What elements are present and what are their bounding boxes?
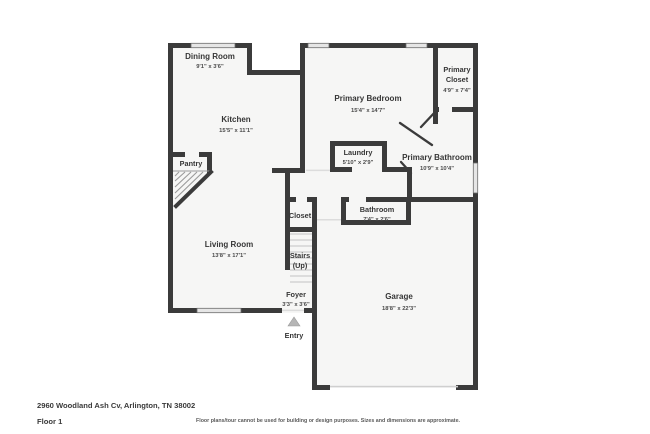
floor-plan-drawing: Dining Room 9'1" x 3'6" Kitchen 15'5" x … <box>0 0 650 434</box>
disclaimer-text: Floor plans/tour cannot be used for buil… <box>196 418 461 424</box>
room-label-primary-bathroom: Primary Bathroom <box>402 153 472 162</box>
window-dining <box>191 43 235 47</box>
room-label-living: Living Room <box>205 240 253 249</box>
hall-threshold <box>306 170 330 172</box>
floor-plan-page: Dining Room 9'1" x 3'6" Kitchen 15'5" x … <box>0 0 650 434</box>
room-dims-primary-bathroom: 10'9" x 10'4" <box>420 166 454 172</box>
room-dims-primary-closet: 4'9" x 7'4" <box>443 88 471 94</box>
room-label-primary-closet-2: Closet <box>446 75 469 84</box>
wall <box>171 152 185 157</box>
room-label-laundry: Laundry <box>344 148 374 157</box>
entry-threshold <box>282 310 304 312</box>
room-label-primary-closet-1: Primary <box>443 65 471 74</box>
floor-label: Floor 1 <box>37 417 63 426</box>
room-dims-living: 13'8" x 17'1" <box>212 253 246 259</box>
room-label-dining: Dining Room <box>185 52 235 61</box>
wall <box>272 168 305 173</box>
room-label-pantry: Pantry <box>180 159 204 168</box>
room-dims-foyer: 3'3" x 3'6" <box>282 302 310 308</box>
wall <box>330 141 387 146</box>
wall <box>366 197 411 202</box>
room-label-kitchen: Kitchen <box>221 115 250 124</box>
wall <box>285 197 296 202</box>
window-bedroom-right <box>406 43 427 47</box>
room-label-stairs: Stairs <box>290 251 310 260</box>
room-label-primary-bedroom: Primary Bedroom <box>334 94 401 103</box>
floor-fill <box>170 44 475 387</box>
window-bedroom-left <box>308 43 329 47</box>
wall <box>312 197 317 387</box>
room-dims-dining: 9'1" x 3'6" <box>196 64 224 70</box>
room-dims-bathroom: 7'4" x 2'6" <box>363 217 391 223</box>
room-dims-laundry: 5'10" x 2'9" <box>343 160 374 166</box>
room-dims-kitchen: 15'5" x 11'1" <box>219 128 253 134</box>
garage-door <box>330 386 458 388</box>
room-label-garage: Garage <box>385 292 413 301</box>
room-label-bathroom: Bathroom <box>360 205 395 214</box>
room-label-foyer: Foyer <box>286 290 306 299</box>
entry-label: Entry <box>285 331 305 340</box>
room-dims-primary-bedroom: 15'4" x 14'7" <box>351 108 385 114</box>
footer: 2960 Woodland Ash Cv, Arlington, TN 3800… <box>37 401 461 426</box>
wall <box>330 167 352 172</box>
address-text: 2960 Woodland Ash Cv, Arlington, TN 3800… <box>37 401 195 410</box>
wall <box>473 43 478 390</box>
window-primary-bathroom <box>473 163 477 193</box>
room-label-closet: Closet <box>289 211 312 220</box>
window-living-room <box>197 308 241 312</box>
wall <box>452 107 478 112</box>
wall <box>300 48 305 173</box>
wall <box>456 385 478 390</box>
room-dims-garage: 18'8" x 22'3" <box>382 306 416 312</box>
room-label-stairs-up: (Up) <box>293 261 308 270</box>
exterior-notch <box>250 44 300 71</box>
wall <box>406 197 478 202</box>
wall <box>168 43 173 313</box>
garage-threshold <box>317 219 341 221</box>
wall <box>247 70 305 75</box>
